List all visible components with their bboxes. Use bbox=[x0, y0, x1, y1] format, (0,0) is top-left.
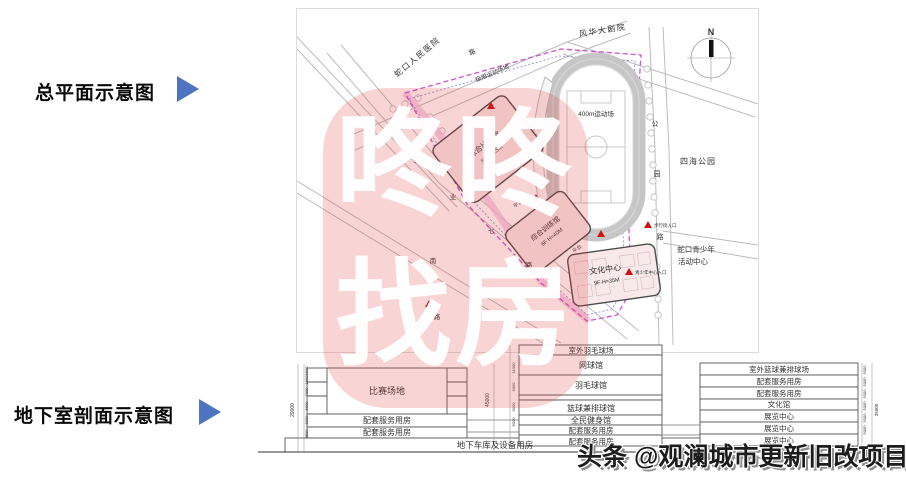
entrance-icon bbox=[644, 221, 652, 228]
road-char: 路 bbox=[467, 46, 477, 57]
dimension: 5000 bbox=[862, 413, 867, 423]
section-label: 配套服务用房 bbox=[757, 376, 802, 386]
dimension: 5000 bbox=[862, 425, 867, 435]
dimension: 5000 bbox=[862, 389, 867, 399]
entrance-youth-label: 青少年中心入口 bbox=[635, 269, 667, 276]
section-label: 展览中心 bbox=[764, 411, 794, 421]
dimension: 1500 bbox=[304, 375, 309, 385]
section-label: 地下车库及设备用房 bbox=[457, 440, 534, 450]
section-label: 配套服务用房 bbox=[363, 415, 411, 425]
dimension: 4500 bbox=[304, 429, 309, 439]
section-label: 展览中心 bbox=[764, 423, 794, 433]
caption-siteplan: 总平面示意图 bbox=[35, 78, 155, 105]
hospital-label: 蛇口人民医院 bbox=[392, 35, 442, 79]
page: 总平面示意图 地下室剖面示意图 bbox=[0, 0, 906, 477]
dimension: 5000 bbox=[862, 377, 867, 387]
section-label: 配套服务用房 bbox=[757, 388, 802, 398]
dimension-ticks: 5000 5000 5000 5000 5000 5000 bbox=[862, 365, 867, 435]
dimension: 5000 bbox=[862, 365, 867, 375]
caption-basement: 地下室剖面示意图 bbox=[14, 401, 174, 428]
dimension: 6000 bbox=[304, 415, 309, 425]
arrow-icon bbox=[177, 76, 199, 102]
section-label: 全民健身馆 bbox=[571, 415, 611, 425]
entrance-walk-label: 步行街入口 bbox=[654, 222, 677, 229]
section-label: 室外篮球兼排球场 bbox=[749, 364, 809, 374]
theater-label: 风华大剧院 bbox=[578, 21, 626, 38]
park-label: 四海公园 bbox=[680, 156, 716, 166]
dimension: 5000 bbox=[862, 401, 867, 411]
compass: N bbox=[687, 27, 735, 82]
road-char: 路 bbox=[657, 232, 664, 241]
credit-watermark: 头条 @观澜城市更新旧改项目 bbox=[577, 437, 903, 473]
north-label: N bbox=[708, 27, 715, 37]
youth-center-label: 蛇口青少年 bbox=[677, 244, 715, 254]
road-char: 园 bbox=[654, 170, 661, 178]
watermark-text: 找房 bbox=[323, 240, 588, 390]
dimension: 5000 bbox=[304, 401, 309, 411]
section-label: 配套服务用房 bbox=[569, 425, 614, 435]
watermark-text: 咚咚 bbox=[323, 90, 588, 240]
youth-center-label: 活动中心 bbox=[678, 256, 708, 266]
north-needle-icon bbox=[709, 40, 714, 57]
dimension: 35000 bbox=[874, 403, 879, 416]
dimension: 1500 bbox=[304, 366, 309, 376]
dimension: 29000 bbox=[290, 403, 296, 417]
road-char: 公 bbox=[652, 120, 659, 128]
greenway-label: 极限运动场地 bbox=[474, 62, 510, 83]
watermark-logo: 咚咚 找房 bbox=[323, 88, 588, 408]
dimension: 6000 bbox=[511, 417, 516, 427]
arrow-icon bbox=[199, 399, 221, 425]
section-label: 文化馆 bbox=[768, 399, 791, 409]
dimension: 7000 bbox=[304, 387, 309, 397]
section-label: 篮球兼排球馆 bbox=[567, 403, 615, 413]
section-label: 配套服务用房 bbox=[363, 427, 411, 437]
